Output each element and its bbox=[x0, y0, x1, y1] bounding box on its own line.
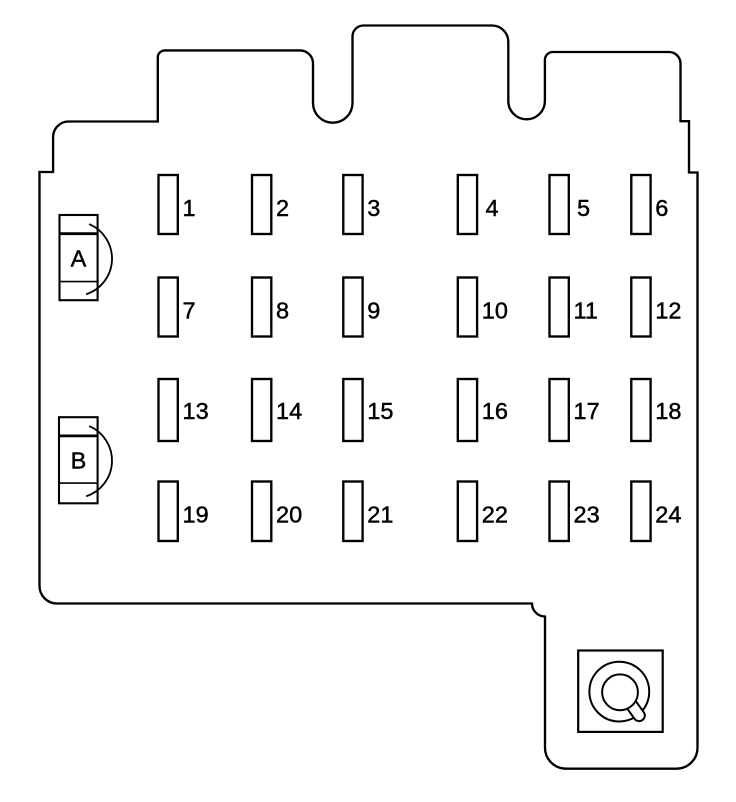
svg-text:1: 1 bbox=[183, 195, 196, 221]
svg-text:22: 22 bbox=[482, 502, 508, 528]
svg-text:9: 9 bbox=[367, 298, 380, 324]
svg-text:23: 23 bbox=[574, 502, 600, 528]
svg-text:3: 3 bbox=[367, 195, 380, 221]
svg-text:10: 10 bbox=[482, 298, 508, 324]
svg-text:7: 7 bbox=[183, 298, 196, 324]
svg-text:21: 21 bbox=[367, 502, 393, 528]
svg-text:16: 16 bbox=[482, 398, 508, 424]
svg-text:8: 8 bbox=[276, 298, 289, 324]
svg-text:19: 19 bbox=[183, 502, 209, 528]
svg-text:15: 15 bbox=[367, 398, 393, 424]
svg-text:A: A bbox=[71, 246, 87, 272]
svg-text:17: 17 bbox=[574, 398, 600, 424]
svg-text:20: 20 bbox=[276, 502, 302, 528]
svg-text:14: 14 bbox=[276, 398, 302, 424]
svg-text:18: 18 bbox=[655, 398, 681, 424]
svg-text:12: 12 bbox=[655, 298, 681, 324]
svg-text:5: 5 bbox=[577, 195, 590, 221]
svg-text:24: 24 bbox=[655, 502, 681, 528]
svg-text:4: 4 bbox=[486, 195, 499, 221]
svg-text:11: 11 bbox=[574, 298, 598, 324]
svg-text:B: B bbox=[71, 447, 87, 473]
svg-text:6: 6 bbox=[655, 195, 668, 221]
svg-text:2: 2 bbox=[276, 195, 289, 221]
svg-text:13: 13 bbox=[183, 398, 209, 424]
